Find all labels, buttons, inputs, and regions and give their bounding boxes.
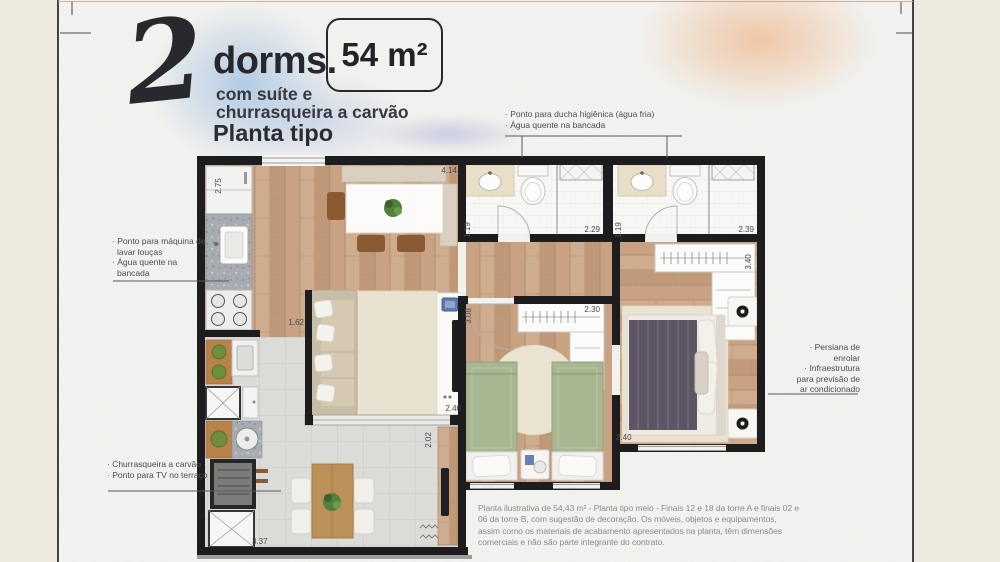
- callout-bath-item-1: · Ponto para ducha higiênica (água fria): [505, 109, 715, 120]
- dim-kitchen-depth: 2.75: [214, 178, 223, 194]
- callout-suite: · Persiana de enrolar · Infraestrutura p…: [788, 342, 860, 395]
- callout-terrace-item-2: · Ponto para TV no terraço: [107, 470, 267, 481]
- dim-bedroom2-closet-width: 2.30: [584, 305, 600, 314]
- dim-sofa-wall: 1.62: [288, 318, 304, 327]
- living-room: [309, 290, 464, 419]
- dim-bath2-width: 2.39: [738, 225, 754, 234]
- dim-terrace-width: 3.37: [252, 537, 268, 546]
- callout-terrace-item-1: · Churrasqueira a carvão: [107, 459, 267, 470]
- brochure-page: { "header": { "big_number": "2", "dorms"…: [0, 0, 1000, 562]
- disclaimer-text: Planta ilustrativa de 54,43 m² - Planta …: [478, 503, 799, 548]
- tv-terrace: [441, 468, 449, 516]
- subtitle-line-2: churrasqueira a carvão: [216, 103, 409, 121]
- area-badge: 54 m²: [326, 18, 443, 92]
- dim-living-width: 4.14: [441, 166, 457, 175]
- plan-type-label: Planta tipo: [213, 120, 333, 147]
- dim-bath1-depth: 1.19: [463, 222, 472, 238]
- callout-bathrooms: · Ponto para ducha higiênica (água fria)…: [505, 109, 715, 130]
- sliding-door: [305, 415, 458, 425]
- callout-kitchen-item-2: · Água quente na bancada: [112, 257, 209, 278]
- dim-suite-closet-depth: 3.40: [744, 254, 753, 270]
- dorms-label: dorms.: [213, 40, 337, 83]
- dim-bath2-depth: 1.19: [614, 222, 623, 238]
- dim-suite-width: 2.40: [616, 433, 632, 442]
- suite-bed: [627, 315, 725, 435]
- twin-bed-1: [466, 362, 517, 480]
- dim-living-tv: 2.40: [445, 404, 461, 413]
- dim-terrace-depth: 2.02: [424, 432, 433, 448]
- big-number: 2: [120, 2, 209, 122]
- callout-suite-item-1: · Persiana de enrolar: [788, 342, 860, 363]
- dim-bedroom2-depth: 3.08: [464, 308, 473, 324]
- callout-kitchen-item-1: · Ponto para máquina de lavar louças: [112, 236, 209, 257]
- dim-bath1-width: 2.29: [584, 225, 600, 234]
- callout-bath-item-2: · Água quente na bancada: [505, 120, 715, 131]
- kitchen: [206, 166, 252, 330]
- callout-kitchen: · Ponto para máquina de lavar louças · Á…: [112, 236, 209, 278]
- twin-bed-2: [552, 362, 603, 480]
- callout-suite-item-2: · Infraestrutura para previsão de ar con…: [788, 363, 860, 395]
- callout-terrace: · Churrasqueira a carvão · Ponto para TV…: [107, 459, 267, 480]
